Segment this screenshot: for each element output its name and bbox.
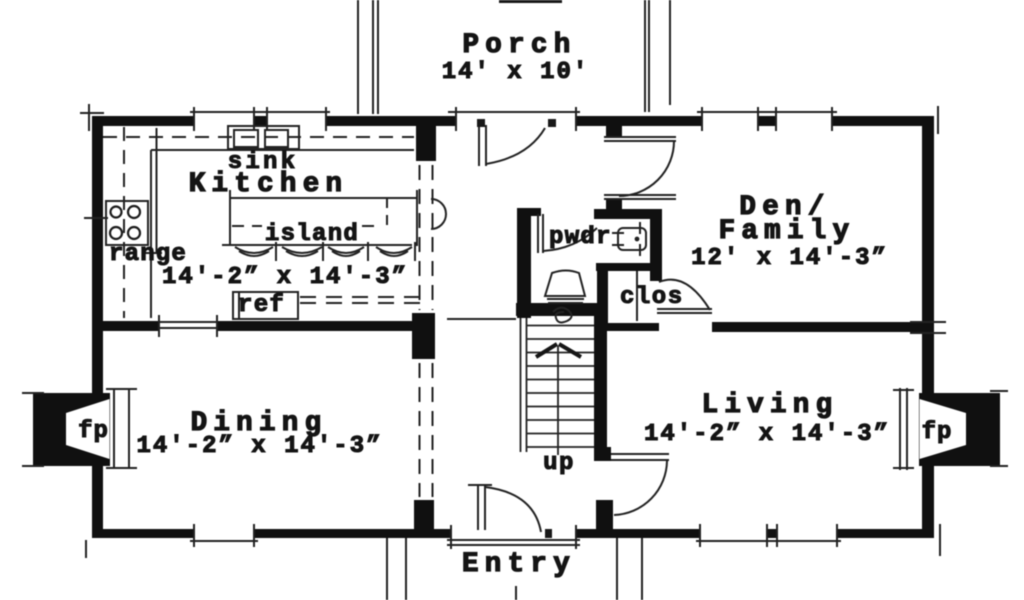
svg-text:island: island	[265, 221, 359, 248]
svg-text:Living: Living	[702, 390, 839, 421]
svg-text:14'-2” x 14'-3”: 14'-2” x 14'-3”	[162, 264, 408, 291]
svg-text:up: up	[543, 450, 575, 477]
svg-text:Family: Family	[719, 216, 856, 247]
svg-text:14'-2” x 14'-3”: 14'-2” x 14'-3”	[644, 421, 890, 448]
svg-text:12' x 14'-3”: 12' x 14'-3”	[691, 245, 888, 272]
svg-text:sink: sink	[228, 149, 298, 176]
svg-text:pwdr: pwdr	[549, 224, 612, 251]
svg-text:fp: fp	[922, 419, 953, 446]
svg-text:14'-2” x 14'-3”: 14'-2” x 14'-3”	[136, 433, 382, 460]
svg-text:clos: clos	[620, 284, 684, 311]
svg-text:fp: fp	[78, 418, 109, 445]
svg-text:14' x 10': 14' x 10'	[442, 59, 590, 86]
svg-text:ref: ref	[238, 292, 285, 319]
svg-text:Entry: Entry	[462, 549, 576, 580]
svg-text:Porch: Porch	[462, 30, 576, 61]
